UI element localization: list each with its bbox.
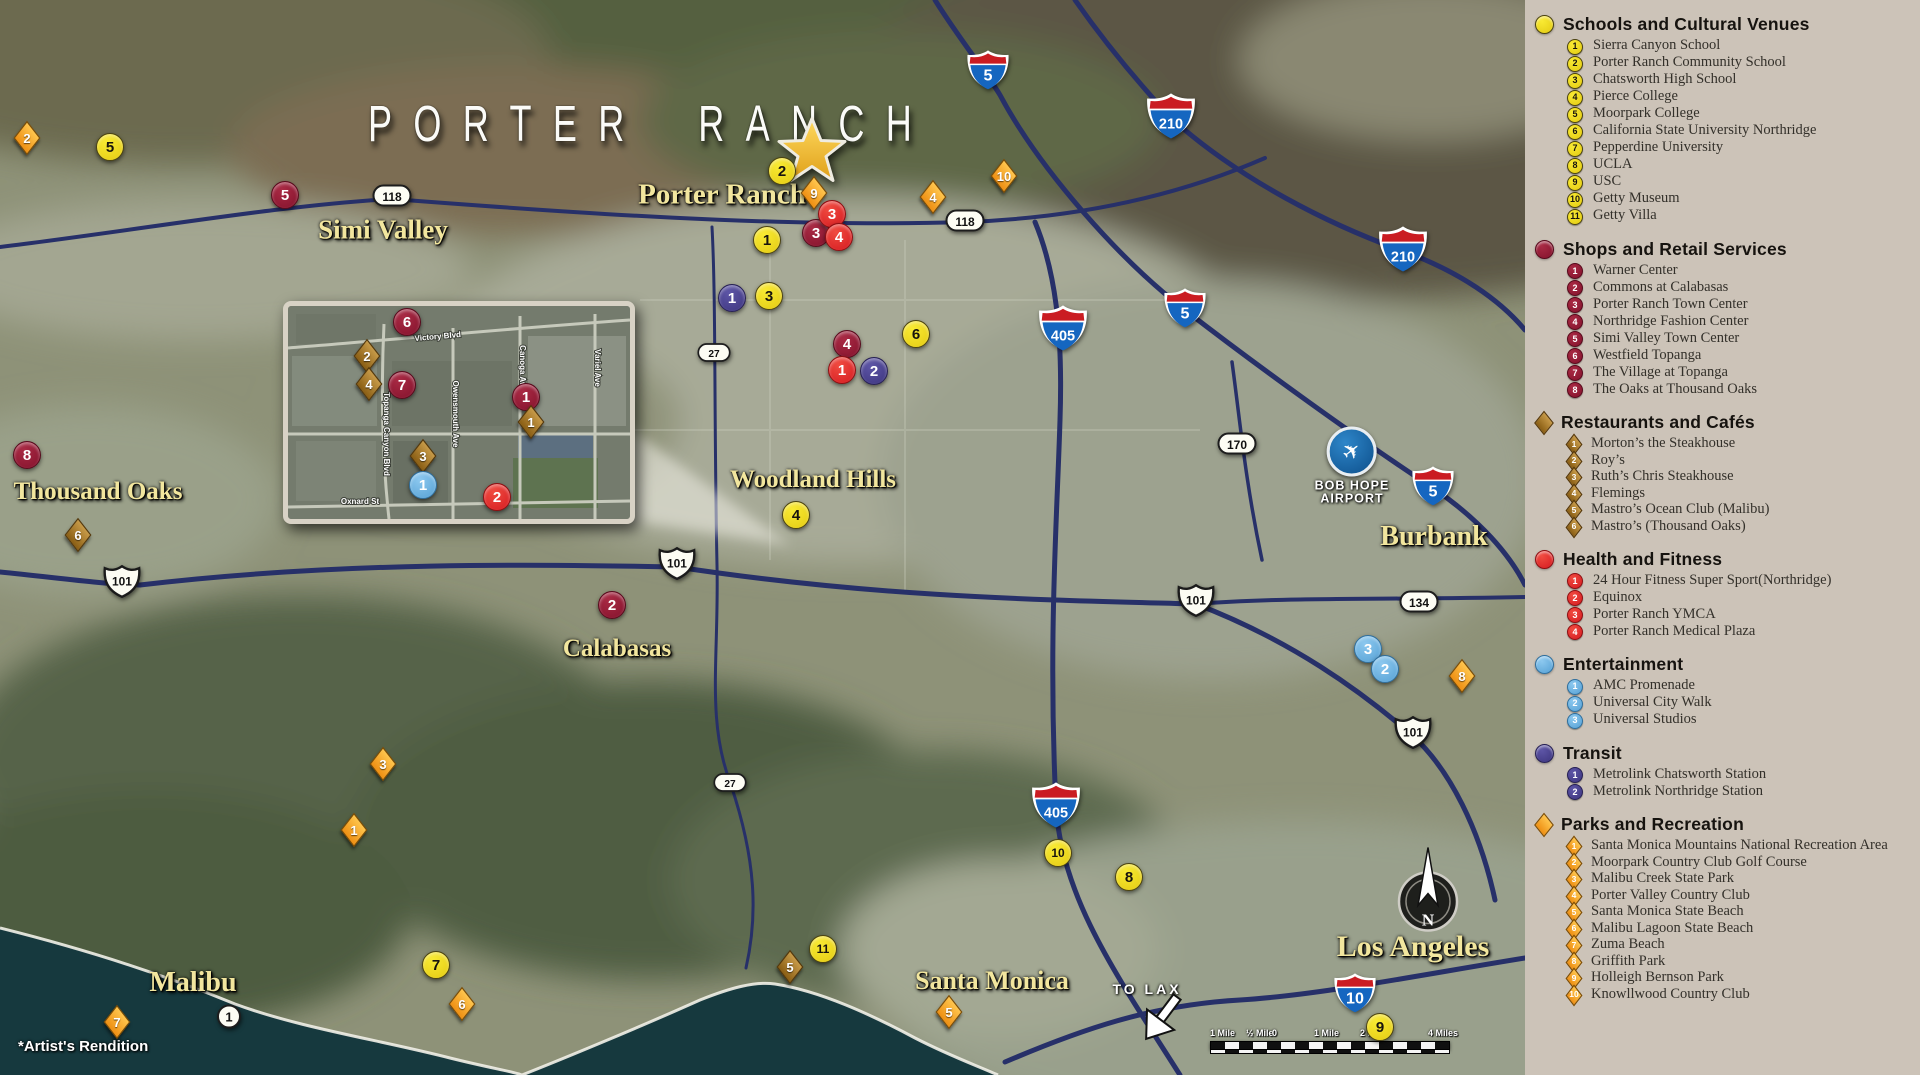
legend-item-parks-9: 9Holleigh Bernson Park bbox=[1525, 970, 1920, 986]
map-marker-schools-1[interactable]: 1 bbox=[753, 226, 781, 254]
parks-badge-1: 1 bbox=[1567, 838, 1581, 854]
map-marker-parks-1[interactable]: 1 bbox=[341, 814, 367, 846]
map-marker-restaurants-3[interactable]: 3 bbox=[410, 440, 436, 472]
legend-item-text: Malibu Lagoon State Beach bbox=[1591, 921, 1753, 936]
city-label-burbank: Burbank bbox=[1380, 521, 1487, 553]
map-marker-schools-5[interactable]: 5 bbox=[96, 133, 124, 161]
bob-hope-airport-badge: ✈ BOB HOPE AIRPORT bbox=[1315, 427, 1390, 506]
legend-title-health: Health and Fitness bbox=[1563, 549, 1722, 570]
parks-badge-4: 4 bbox=[1567, 888, 1581, 904]
health-badge-3: 3 bbox=[1567, 607, 1583, 623]
shops-badge-5: 5 bbox=[1567, 331, 1583, 347]
restaurants-badge-3: 3 bbox=[1567, 469, 1581, 485]
highway-shield-interstate-5-5: 5 bbox=[1411, 466, 1455, 511]
legend-item-text: The Oaks at Thousand Oaks bbox=[1593, 382, 1757, 397]
city-label-malibu: Malibu bbox=[149, 967, 236, 999]
transit-circle-icon bbox=[1535, 744, 1554, 763]
highway-shield-interstate-210-2: 210 bbox=[1377, 226, 1429, 277]
legend-header-parks: Parks and Recreation bbox=[1525, 814, 1920, 835]
legend-item-schools-1: 1Sierra Canyon School bbox=[1525, 38, 1920, 55]
scale-bar-ruler-2 bbox=[1210, 1050, 1450, 1054]
parks-badge-7: 7 bbox=[1567, 937, 1581, 953]
svg-text:210: 210 bbox=[1159, 116, 1183, 132]
legend-item-shops-4: 4Northridge Fashion Center bbox=[1525, 314, 1920, 331]
highway-shield-interstate-210-1: 210 bbox=[1145, 93, 1197, 144]
legend-item-text: Flemings bbox=[1591, 486, 1645, 501]
legend-header-transit: Transit bbox=[1525, 743, 1920, 764]
legend-title-entertainment: Entertainment bbox=[1563, 654, 1683, 675]
legend-item-parks-1: 1Santa Monica Mountains National Recreat… bbox=[1525, 838, 1920, 854]
legend-item-text: Ruth’s Chris Steakhouse bbox=[1591, 469, 1734, 484]
legend-item-transit-1: 1Metrolink Chatsworth Station bbox=[1525, 767, 1920, 784]
entertainment-badge-2: 2 bbox=[1567, 696, 1583, 712]
legend-item-shops-3: 3Porter Ranch Town Center bbox=[1525, 297, 1920, 314]
legend-item-shops-6: 6Westfield Topanga bbox=[1525, 348, 1920, 365]
legend-section-shops: Shops and Retail Services1Warner Center2… bbox=[1525, 239, 1920, 399]
highway-shield-us-101-17: 101 bbox=[1175, 583, 1217, 625]
svg-text:170: 170 bbox=[1227, 438, 1247, 452]
legend-item-schools-2: 2Porter Ranch Community School bbox=[1525, 55, 1920, 72]
legend-item-parks-7: 7Zuma Beach bbox=[1525, 937, 1920, 953]
legend-item-text: Chatsworth High School bbox=[1593, 72, 1736, 87]
legend-item-schools-5: 5Moorpark College bbox=[1525, 106, 1920, 123]
legend-item-text: Metrolink Chatsworth Station bbox=[1593, 767, 1766, 782]
schools-badge-11: 11 bbox=[1567, 209, 1583, 225]
to-lax-arrow-icon bbox=[1137, 991, 1189, 1054]
legend-item-text: Santa Monica State Beach bbox=[1591, 904, 1744, 919]
legend-item-text: Commons at Calabasas bbox=[1593, 280, 1728, 295]
shops-badge-6: 6 bbox=[1567, 348, 1583, 364]
transit-badge-1: 1 bbox=[1567, 767, 1583, 783]
legend-sections: Schools and Cultural Venues1Sierra Canyo… bbox=[1525, 14, 1920, 1003]
legend-title-restaurants: Restaurants and Cafés bbox=[1561, 412, 1755, 433]
compass-rose: N bbox=[1392, 844, 1464, 949]
schools-badge-10: 10 bbox=[1567, 192, 1583, 208]
legend-title-transit: Transit bbox=[1563, 743, 1622, 764]
terrain-and-roads bbox=[0, 0, 1525, 1075]
legend-item-restaurants-1: 1Morton’s the Steakhouse bbox=[1525, 436, 1920, 452]
artists-rendition-note: *Artist's Rendition bbox=[18, 1038, 148, 1055]
legend-item-text: Zuma Beach bbox=[1591, 937, 1665, 952]
highway-shield-state-27-10: 27 bbox=[697, 341, 731, 370]
legend-item-text: USC bbox=[1593, 174, 1621, 189]
schools-badge-6: 6 bbox=[1567, 124, 1583, 140]
highway-shield-state-170-12: 170 bbox=[1217, 432, 1257, 461]
svg-text:118: 118 bbox=[955, 215, 975, 229]
scale-labels: 1 Mile½ Mile01 Mile2 Mile4 Miles bbox=[1210, 1028, 1450, 1039]
legend-item-restaurants-4: 4Flemings bbox=[1525, 486, 1920, 502]
map-marker-parks-8[interactable]: 8 bbox=[1449, 660, 1475, 692]
schools-badge-7: 7 bbox=[1567, 141, 1583, 157]
shops-circle-icon bbox=[1535, 240, 1554, 259]
restaurants-badge-6: 6 bbox=[1567, 519, 1581, 535]
highway-shield-interstate-10-7: 10 bbox=[1333, 973, 1377, 1018]
svg-text:134: 134 bbox=[1409, 596, 1429, 610]
legend-item-text: Porter Ranch Town Center bbox=[1593, 297, 1748, 312]
svg-text:405: 405 bbox=[1051, 328, 1075, 344]
restaurants-badge-1: 1 bbox=[1567, 436, 1581, 452]
scale-label-2: 0 bbox=[1272, 1028, 1277, 1038]
parks-badge-8: 8 bbox=[1567, 954, 1581, 970]
porter-ranch-map-page: PORTER RANCH bbox=[0, 0, 1920, 1075]
schools-badge-5: 5 bbox=[1567, 107, 1583, 123]
airplane-icon: ✈ bbox=[1327, 427, 1377, 477]
map-marker-schools-4[interactable]: 4 bbox=[782, 501, 810, 529]
legend-panel: Schools and Cultural Venues1Sierra Canyo… bbox=[1525, 0, 1920, 1075]
svg-text:27: 27 bbox=[724, 779, 736, 790]
inset-street-label-variel-ave: Variel Ave bbox=[593, 349, 602, 387]
legend-item-text: Santa Monica Mountains National Recreati… bbox=[1591, 838, 1888, 853]
map-marker-schools-8[interactable]: 8 bbox=[1115, 863, 1143, 891]
svg-text:405: 405 bbox=[1044, 805, 1068, 821]
legend-item-text: Westfield Topanga bbox=[1593, 348, 1701, 363]
inset-street-label-owensmouth-ave: Owensmouth Ave bbox=[451, 381, 460, 449]
inset-street-label-oxnard-st: Oxnard St bbox=[341, 497, 380, 506]
map-marker-schools-7[interactable]: 7 bbox=[422, 951, 450, 979]
legend-section-entertainment: Entertainment1AMC Promenade2Universal Ci… bbox=[1525, 654, 1920, 729]
map-marker-parks-7[interactable]: 7 bbox=[104, 1006, 130, 1038]
map-marker-parks-4[interactable]: 4 bbox=[920, 181, 946, 213]
legend-item-text: Porter Ranch Community School bbox=[1593, 55, 1786, 70]
legend-item-text: Griffith Park bbox=[1591, 954, 1665, 969]
map-marker-schools-11[interactable]: 11 bbox=[809, 935, 837, 963]
legend-item-health-3: 3Porter Ranch YMCA bbox=[1525, 607, 1920, 624]
legend-item-entertainment-1: 1AMC Promenade bbox=[1525, 678, 1920, 695]
airport-name-line2: AIRPORT bbox=[1315, 493, 1390, 506]
map-marker-schools-2[interactable]: 2 bbox=[768, 157, 796, 185]
map-marker-health-4[interactable]: 4 bbox=[825, 223, 853, 251]
legend-item-schools-10: 10Getty Museum bbox=[1525, 191, 1920, 208]
legend-item-text: Getty Villa bbox=[1593, 208, 1657, 223]
schools-badge-1: 1 bbox=[1567, 39, 1583, 55]
map-marker-shops-6[interactable]: 6 bbox=[393, 308, 421, 336]
legend-item-text: Porter Ranch Medical Plaza bbox=[1593, 624, 1755, 639]
legend-item-schools-11: 11Getty Villa bbox=[1525, 208, 1920, 225]
scale-label-5: 4 Miles bbox=[1428, 1028, 1458, 1038]
legend-title-shops: Shops and Retail Services bbox=[1563, 239, 1787, 260]
map-marker-schools-3[interactable]: 3 bbox=[755, 282, 783, 310]
city-label-santa-monica: Santa Monica bbox=[915, 966, 1069, 996]
legend-item-text: Malibu Creek State Park bbox=[1591, 871, 1734, 886]
legend-item-schools-8: 8UCLA bbox=[1525, 157, 1920, 174]
legend-item-health-1: 124 Hour Fitness Super Sport(Northridge) bbox=[1525, 573, 1920, 590]
legend-item-shops-5: 5Simi Valley Town Center bbox=[1525, 331, 1920, 348]
map-marker-shops-8[interactable]: 8 bbox=[13, 441, 41, 469]
map-marker-restaurants-5[interactable]: 5 bbox=[777, 951, 803, 983]
legend-title-schools: Schools and Cultural Venues bbox=[1563, 14, 1810, 35]
map-marker-parks-6[interactable]: 6 bbox=[449, 988, 475, 1020]
shops-badge-7: 7 bbox=[1567, 365, 1583, 381]
map-canvas: PORTER RANCH bbox=[0, 0, 1525, 1075]
highway-shield-us-101-18: 101 bbox=[1392, 715, 1434, 757]
legend-item-parks-2: 2Moorpark Country Club Golf Course bbox=[1525, 855, 1920, 871]
schools-badge-2: 2 bbox=[1567, 56, 1583, 72]
scale-label-0: 1 Mile bbox=[1210, 1028, 1235, 1038]
health-badge-2: 2 bbox=[1567, 590, 1583, 606]
legend-item-text: Universal City Walk bbox=[1593, 695, 1712, 710]
legend-item-parks-3: 3Malibu Creek State Park bbox=[1525, 871, 1920, 887]
shops-badge-3: 3 bbox=[1567, 297, 1583, 313]
map-marker-schools-10[interactable]: 10 bbox=[1044, 839, 1072, 867]
shops-badge-4: 4 bbox=[1567, 314, 1583, 330]
legend-header-entertainment: Entertainment bbox=[1525, 654, 1920, 675]
parks-badge-3: 3 bbox=[1567, 871, 1581, 887]
legend-section-restaurants: Restaurants and Cafés1Morton’s the Steak… bbox=[1525, 412, 1920, 535]
svg-text:101: 101 bbox=[1186, 593, 1206, 607]
legend-item-text: 24 Hour Fitness Super Sport(Northridge) bbox=[1593, 573, 1831, 588]
legend-title-parks: Parks and Recreation bbox=[1561, 814, 1744, 835]
map-marker-transit-2[interactable]: 2 bbox=[860, 357, 888, 385]
map-marker-parks-5[interactable]: 5 bbox=[936, 996, 962, 1028]
legend-section-health: Health and Fitness124 Hour Fitness Super… bbox=[1525, 549, 1920, 641]
transit-badge-2: 2 bbox=[1567, 784, 1583, 800]
map-marker-parks-10[interactable]: 10 bbox=[991, 160, 1017, 192]
svg-text:5: 5 bbox=[984, 67, 993, 85]
svg-text:5: 5 bbox=[1181, 305, 1190, 323]
svg-text:118: 118 bbox=[382, 190, 402, 204]
schools-badge-9: 9 bbox=[1567, 175, 1583, 191]
legend-item-text: Pepperdine University bbox=[1593, 140, 1723, 155]
map-marker-health-2[interactable]: 2 bbox=[483, 483, 511, 511]
legend-item-text: Mastro’s (Thousand Oaks) bbox=[1591, 519, 1746, 534]
highway-shield-state-118-8: 118 bbox=[372, 184, 412, 213]
svg-text:5: 5 bbox=[1429, 483, 1438, 501]
legend-item-text: Roy’s bbox=[1591, 453, 1625, 468]
legend-item-text: UCLA bbox=[1593, 157, 1632, 172]
map-marker-health-1[interactable]: 1 bbox=[828, 356, 856, 384]
inset-map-warner-center: Victory BlvdTopanga Canyon BlvdOwensmout… bbox=[283, 301, 635, 524]
legend-item-parks-8: 8Griffith Park bbox=[1525, 954, 1920, 970]
svg-text:101: 101 bbox=[667, 556, 687, 570]
legend-item-text: Mastro’s Ocean Club (Malibu) bbox=[1591, 502, 1769, 517]
health-circle-icon bbox=[1535, 550, 1554, 569]
legend-item-restaurants-2: 2Roy’s bbox=[1525, 453, 1920, 469]
legend-item-shops-1: 1Warner Center bbox=[1525, 263, 1920, 280]
svg-text:10: 10 bbox=[1346, 990, 1364, 1008]
entertainment-circle-icon bbox=[1535, 655, 1554, 674]
schools-badge-3: 3 bbox=[1567, 73, 1583, 89]
highway-shield-us-101-16: 101 bbox=[656, 546, 698, 588]
legend-item-text: Sierra Canyon School bbox=[1593, 38, 1720, 53]
legend-section-schools: Schools and Cultural Venues1Sierra Canyo… bbox=[1525, 14, 1920, 225]
legend-item-parks-4: 4Porter Valley Country Club bbox=[1525, 888, 1920, 904]
parks-badge-6: 6 bbox=[1567, 921, 1581, 937]
map-marker-restaurants-6[interactable]: 6 bbox=[65, 519, 91, 551]
legend-item-parks-6: 6Malibu Lagoon State Beach bbox=[1525, 921, 1920, 937]
map-marker-shops-5[interactable]: 5 bbox=[271, 181, 299, 209]
scale-label-3: 1 Mile bbox=[1314, 1028, 1339, 1038]
highway-shield-state-118-9: 118 bbox=[945, 209, 985, 238]
legend-item-shops-7: 7The Village at Topanga bbox=[1525, 365, 1920, 382]
legend-item-text: Getty Museum bbox=[1593, 191, 1680, 206]
legend-item-text: Moorpark Country Club Golf Course bbox=[1591, 855, 1807, 870]
legend-item-text: Pierce College bbox=[1593, 89, 1678, 104]
legend-item-text: Porter Ranch YMCA bbox=[1593, 607, 1716, 622]
map-marker-shops-4[interactable]: 4 bbox=[833, 330, 861, 358]
health-badge-1: 1 bbox=[1567, 573, 1583, 589]
legend-header-health: Health and Fitness bbox=[1525, 549, 1920, 570]
legend-item-text: Northridge Fashion Center bbox=[1593, 314, 1748, 329]
inset-streets-svg: Victory BlvdTopanga Canyon BlvdOwensmout… bbox=[288, 306, 630, 519]
legend-item-shops-2: 2Commons at Calabasas bbox=[1525, 280, 1920, 297]
city-label-calabasas: Calabasas bbox=[563, 635, 671, 663]
highway-shield-route1-1-14: 1 bbox=[216, 1004, 242, 1035]
legend-header-shops: Shops and Retail Services bbox=[1525, 239, 1920, 260]
scale-bar-ruler bbox=[1210, 1041, 1450, 1050]
legend-item-restaurants-6: 6Mastro’s (Thousand Oaks) bbox=[1525, 519, 1920, 535]
highway-shield-interstate-405-4: 405 bbox=[1037, 305, 1089, 356]
schools-badge-4: 4 bbox=[1567, 90, 1583, 106]
legend-item-health-2: 2Equinox bbox=[1525, 590, 1920, 607]
highway-shield-interstate-5-0: 5 bbox=[966, 50, 1010, 95]
legend-item-text: Knowllwood Country Club bbox=[1591, 987, 1750, 1002]
map-marker-restaurants-4[interactable]: 4 bbox=[356, 368, 382, 400]
shops-badge-8: 8 bbox=[1567, 382, 1583, 398]
parks-diamond-icon bbox=[1535, 815, 1552, 834]
legend-item-health-4: 4Porter Ranch Medical Plaza bbox=[1525, 624, 1920, 641]
svg-text:101: 101 bbox=[1403, 725, 1423, 739]
legend-section-transit: Transit1Metrolink Chatsworth Station2Met… bbox=[1525, 743, 1920, 801]
parks-badge-2: 2 bbox=[1567, 855, 1581, 871]
legend-item-shops-8: 8The Oaks at Thousand Oaks bbox=[1525, 382, 1920, 399]
map-marker-parks-2[interactable]: 2 bbox=[14, 122, 40, 154]
scale-label-1: ½ Mile bbox=[1246, 1028, 1274, 1038]
restaurants-badge-2: 2 bbox=[1567, 453, 1581, 469]
legend-item-entertainment-2: 2Universal City Walk bbox=[1525, 695, 1920, 712]
highway-shield-interstate-405-6: 405 bbox=[1030, 782, 1082, 833]
legend-item-schools-4: 4Pierce College bbox=[1525, 89, 1920, 106]
map-scale-bar: 1 Mile½ Mile01 Mile2 Mile4 Miles bbox=[1210, 1028, 1450, 1054]
legend-item-text: Holleigh Bernson Park bbox=[1591, 970, 1724, 985]
legend-item-text: Equinox bbox=[1593, 590, 1642, 605]
restaurants-badge-5: 5 bbox=[1567, 502, 1581, 518]
legend-item-text: Simi Valley Town Center bbox=[1593, 331, 1739, 346]
map-marker-schools-6[interactable]: 6 bbox=[902, 320, 930, 348]
entertainment-badge-1: 1 bbox=[1567, 679, 1583, 695]
compass-n-label: N bbox=[1422, 911, 1435, 930]
shops-badge-1: 1 bbox=[1567, 263, 1583, 279]
legend-item-transit-2: 2Metrolink Northridge Station bbox=[1525, 784, 1920, 801]
legend-header-restaurants: Restaurants and Cafés bbox=[1525, 412, 1920, 433]
map-marker-shops-7[interactable]: 7 bbox=[388, 371, 416, 399]
legend-item-parks-5: 5Santa Monica State Beach bbox=[1525, 904, 1920, 920]
legend-item-text: The Village at Topanga bbox=[1593, 365, 1728, 380]
map-marker-parks-3[interactable]: 3 bbox=[370, 748, 396, 780]
map-marker-parks-9[interactable]: 9 bbox=[801, 177, 827, 209]
inset-street-label-topanga-canyon-blvd: Topanga Canyon Blvd bbox=[382, 392, 391, 476]
schools-circle-icon bbox=[1535, 15, 1554, 34]
legend-item-restaurants-3: 3Ruth’s Chris Steakhouse bbox=[1525, 469, 1920, 485]
svg-text:210: 210 bbox=[1391, 249, 1415, 265]
legend-item-schools-7: 7Pepperdine University bbox=[1525, 140, 1920, 157]
legend-item-text: Warner Center bbox=[1593, 263, 1678, 278]
legend-item-text: Porter Valley Country Club bbox=[1591, 888, 1750, 903]
schools-badge-8: 8 bbox=[1567, 158, 1583, 174]
map-marker-entertainment-1[interactable]: 1 bbox=[409, 471, 437, 499]
legend-item-schools-9: 9USC bbox=[1525, 174, 1920, 191]
map-marker-transit-1[interactable]: 1 bbox=[718, 284, 746, 312]
legend-item-entertainment-3: 3Universal Studios bbox=[1525, 712, 1920, 729]
legend-item-text: Metrolink Northridge Station bbox=[1593, 784, 1763, 799]
legend-item-schools-6: 6California State University Northridge bbox=[1525, 123, 1920, 140]
legend-item-schools-3: 3Chatsworth High School bbox=[1525, 72, 1920, 89]
highway-shield-us-101-15: 101 bbox=[101, 564, 143, 606]
city-label-thousand-oaks: Thousand Oaks bbox=[14, 478, 183, 506]
svg-text:101: 101 bbox=[112, 574, 132, 588]
parks-badge-5: 5 bbox=[1567, 904, 1581, 920]
map-marker-restaurants-1[interactable]: 1 bbox=[518, 406, 544, 438]
city-label-woodland-hills: Woodland Hills bbox=[730, 466, 896, 494]
parks-badge-9: 9 bbox=[1567, 970, 1581, 986]
legend-item-text: Morton’s the Steakhouse bbox=[1591, 436, 1735, 451]
entertainment-badge-3: 3 bbox=[1567, 713, 1583, 729]
legend-item-text: AMC Promenade bbox=[1593, 678, 1695, 693]
highway-shield-interstate-5-3: 5 bbox=[1163, 288, 1207, 333]
restaurants-badge-4: 4 bbox=[1567, 486, 1581, 502]
svg-text:27: 27 bbox=[708, 349, 720, 360]
highway-shield-state-134-13: 134 bbox=[1399, 590, 1439, 619]
legend-section-parks: Parks and Recreation1Santa Monica Mounta… bbox=[1525, 814, 1920, 1003]
legend-item-text: Moorpark College bbox=[1593, 106, 1700, 121]
legend-header-schools: Schools and Cultural Venues bbox=[1525, 14, 1920, 35]
legend-item-text: Universal Studios bbox=[1593, 712, 1697, 727]
svg-text:1: 1 bbox=[225, 1010, 232, 1025]
highway-shield-state-27-11: 27 bbox=[713, 771, 747, 800]
restaurants-diamond-icon bbox=[1535, 413, 1552, 432]
legend-item-parks-10: 10Knowllwood Country Club bbox=[1525, 987, 1920, 1003]
map-marker-schools-9[interactable]: 9 bbox=[1366, 1013, 1394, 1041]
page-title: PORTER RANCH bbox=[368, 96, 729, 154]
parks-badge-10: 10 bbox=[1567, 987, 1581, 1003]
map-marker-entertainment-2[interactable]: 2 bbox=[1371, 655, 1399, 683]
health-badge-4: 4 bbox=[1567, 624, 1583, 640]
city-label-simi-valley: Simi Valley bbox=[318, 215, 448, 246]
legend-item-restaurants-5: 5Mastro’s Ocean Club (Malibu) bbox=[1525, 502, 1920, 518]
legend-item-text: California State University Northridge bbox=[1593, 123, 1817, 138]
map-marker-shops-2[interactable]: 2 bbox=[598, 591, 626, 619]
shops-badge-2: 2 bbox=[1567, 280, 1583, 296]
